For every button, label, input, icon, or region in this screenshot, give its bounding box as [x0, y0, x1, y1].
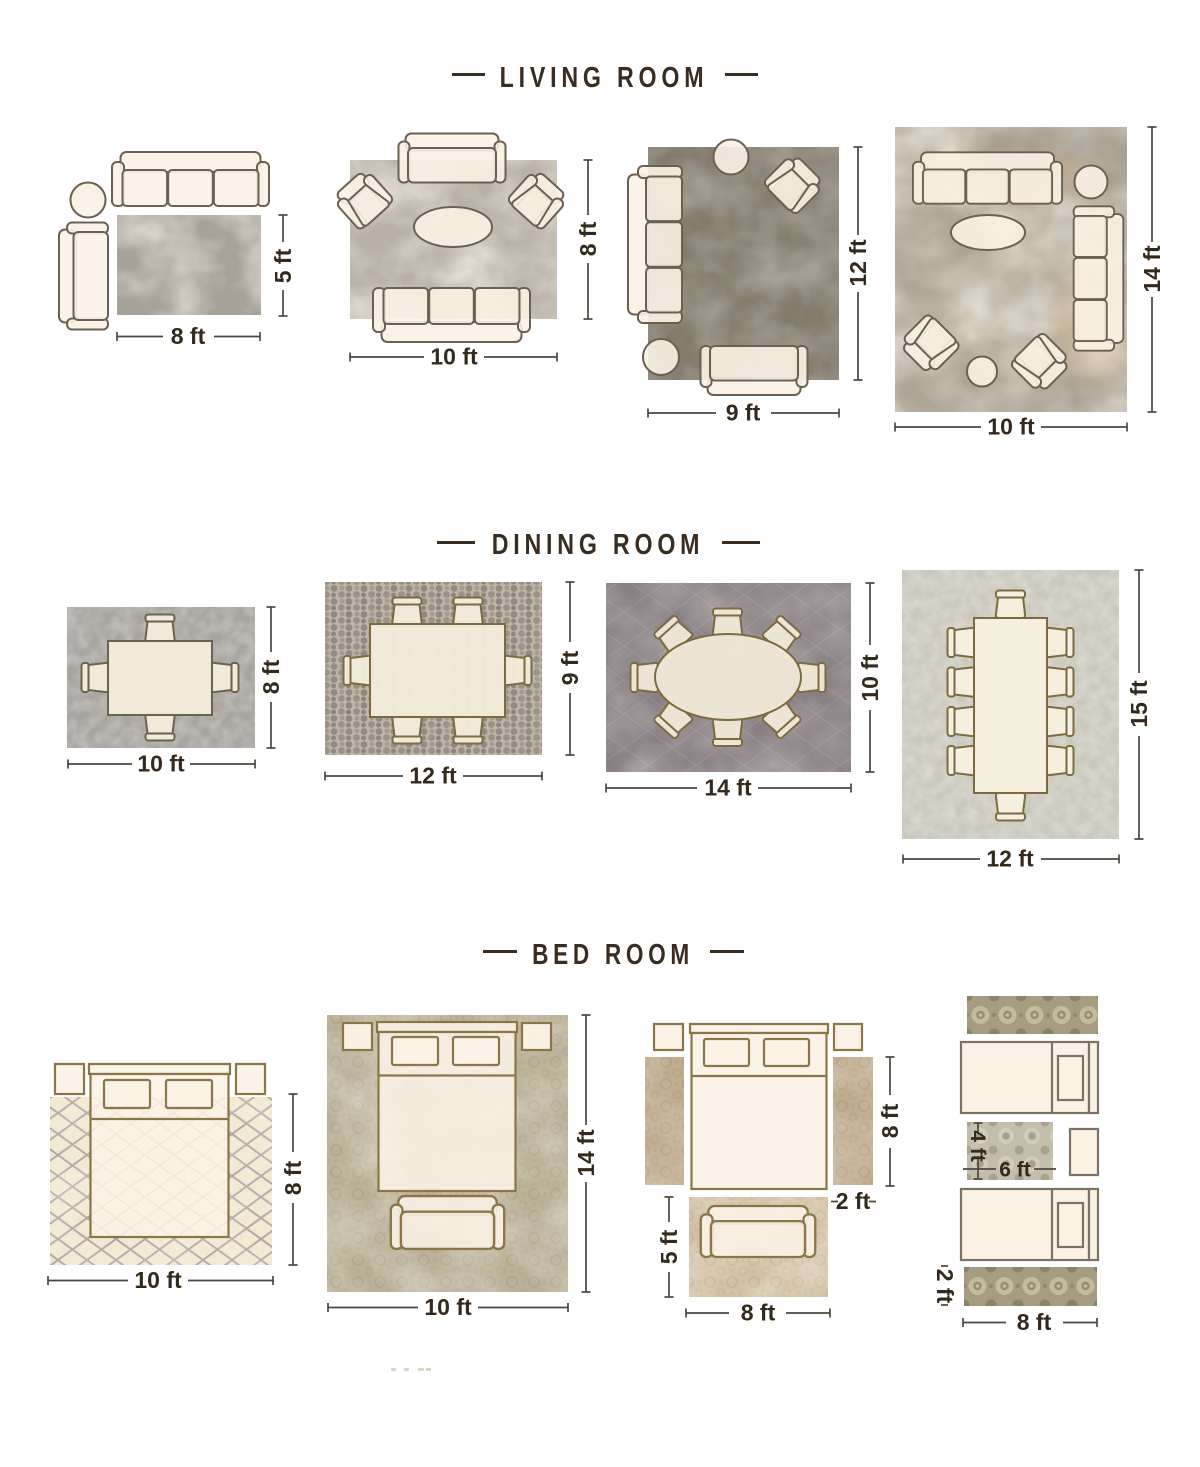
svg-text:15 ft: 15 ft [1126, 680, 1152, 728]
svg-text:8 ft: 8 ft [877, 1103, 903, 1138]
svg-text:12 ft: 12 ft [845, 239, 871, 287]
svg-text:2 ft: 2 ft [836, 1188, 871, 1214]
svg-text:BED ROOM: BED ROOM [532, 937, 694, 970]
svg-text:12 ft: 12 ft [986, 846, 1034, 872]
svg-text:2 ft: 2 ft [932, 1269, 958, 1304]
svg-text:10 ft: 10 ft [424, 1294, 472, 1320]
svg-text:5 ft: 5 ft [656, 1229, 682, 1264]
svg-text:10 ft: 10 ft [134, 1267, 182, 1293]
svg-text:14 ft: 14 ft [1139, 245, 1165, 293]
svg-text:DINING ROOM: DINING ROOM [492, 527, 705, 560]
svg-text:10 ft: 10 ft [430, 344, 478, 370]
svg-text:9 ft: 9 ft [557, 650, 583, 685]
svg-text:10 ft: 10 ft [857, 654, 883, 702]
svg-text:4 ft: 4 ft [966, 1130, 989, 1162]
svg-text:8 ft: 8 ft [1017, 1309, 1052, 1335]
svg-text:10 ft: 10 ft [137, 751, 185, 777]
svg-text:14 ft: 14 ft [573, 1129, 599, 1177]
svg-text:LIVING ROOM: LIVING ROOM [500, 60, 709, 93]
svg-text:6 ft: 6 ft [999, 1159, 1031, 1182]
svg-text:12 ft: 12 ft [409, 763, 457, 789]
svg-text:8 ft: 8 ft [171, 323, 206, 349]
svg-text:8 ft: 8 ft [258, 659, 284, 694]
svg-text:14 ft: 14 ft [704, 775, 752, 801]
svg-text:8 ft: 8 ft [741, 1300, 776, 1326]
svg-text:8 ft: 8 ft [575, 221, 601, 256]
svg-text:5 ft: 5 ft [270, 248, 296, 283]
svg-text:8 ft: 8 ft [280, 1160, 306, 1195]
svg-text:10 ft: 10 ft [987, 414, 1035, 440]
svg-text:9 ft: 9 ft [726, 400, 761, 426]
